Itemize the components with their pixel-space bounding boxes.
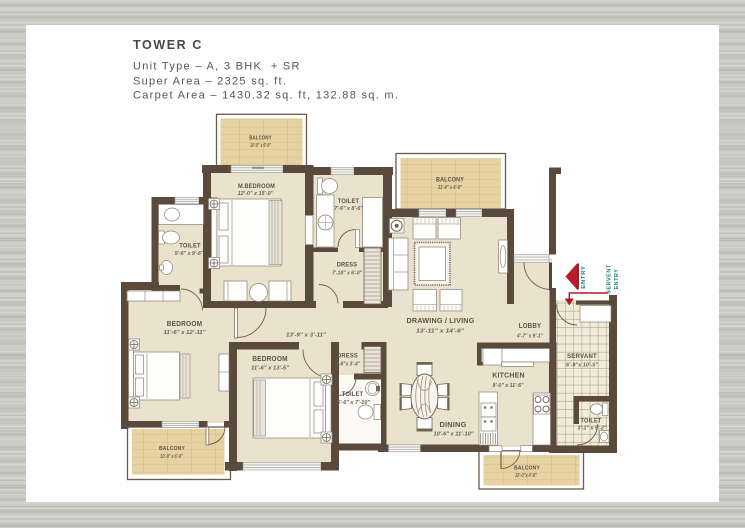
svg-text:11'-4" x 6'-0": 11'-4" x 6'-0" <box>438 185 462 191</box>
svg-text:10'-6" x 11'-10": 10'-6" x 11'-10" <box>434 432 474 438</box>
svg-text:SERVANT: SERVANT <box>567 353 597 360</box>
svg-text:Super Area – 2325 sq. ft.: Super Area – 2325 sq. ft. <box>133 75 287 87</box>
svg-text:3'-1" x 5'-2": 3'-1" x 5'-2" <box>578 426 608 432</box>
svg-text:7'-10" x 6'-0": 7'-10" x 6'-0" <box>332 271 362 277</box>
svg-text:TOILET: TOILET <box>179 243 201 250</box>
svg-text:ENTRY: ENTRY <box>614 268 620 289</box>
svg-text:12'-0"x 4'-8": 12'-0"x 4'-8" <box>515 473 537 479</box>
svg-text:7'-6" x 8'-6": 7'-6" x 8'-6" <box>334 206 363 212</box>
svg-text:BALCONY: BALCONY <box>159 446 185 452</box>
svg-text:5'-6" x 7'-10": 5'-6" x 7'-10" <box>337 400 370 406</box>
svg-text:DINING: DINING <box>440 422 467 429</box>
svg-text:6'-9"x 10'-5": 6'-9"x 10'-5" <box>566 363 599 369</box>
svg-text:DRESS: DRESS <box>337 262 358 269</box>
svg-text:13'-11" x 14'-6": 13'-11" x 14'-6" <box>416 329 464 335</box>
svg-text:BEDROOM: BEDROOM <box>167 321 203 328</box>
svg-text:TOWER C: TOWER C <box>133 38 203 52</box>
svg-text:SERVENT: SERVENT <box>607 264 613 294</box>
svg-text:8'-0" x 11'-6": 8'-0" x 11'-6" <box>493 383 524 389</box>
svg-text:BEDROOM: BEDROOM <box>252 356 288 363</box>
svg-text:KITCHEN: KITCHEN <box>492 373 525 380</box>
svg-text:M.BEDROOM: M.BEDROOM <box>238 183 275 190</box>
svg-text:BALCONY: BALCONY <box>436 178 464 184</box>
svg-text:4'-7" x 9'-1": 4'-7" x 9'-1" <box>516 334 543 340</box>
svg-text:BALCONY: BALCONY <box>514 466 540 472</box>
svg-text:13'-9" x 3'-11": 13'-9" x 3'-11" <box>286 333 326 339</box>
svg-text:5'-6"x 3'-4": 5'-6"x 3'-4" <box>335 362 361 368</box>
svg-text:Carpet Area – 1430.32 sq. ft,: Carpet Area – 1430.32 sq. ft, 132.88 sq.… <box>133 90 399 102</box>
svg-text:ENTRY: ENTRY <box>581 265 587 288</box>
svg-text:TOILET: TOILET <box>581 418 602 425</box>
svg-text:10'-9" x 6'-0": 10'-9" x 6'-0" <box>160 454 183 460</box>
svg-text:DRAWING / LIVING: DRAWING / LIVING <box>407 318 475 325</box>
svg-text:TOILET: TOILET <box>338 198 360 205</box>
svg-text:BALCONY: BALCONY <box>249 136 272 142</box>
svg-text:12'-0" x 15'-0": 12'-0" x 15'-0" <box>238 191 274 197</box>
svg-text:TOILET: TOILET <box>342 391 364 398</box>
svg-text:Unit Type – A, 3 BHK + SR: Unit Type – A, 3 BHK + SR <box>133 61 301 73</box>
svg-text:5'-6" x 9'-6": 5'-6" x 9'-6" <box>175 251 204 257</box>
svg-text:11'-6" x 12'-11": 11'-6" x 12'-11" <box>164 330 206 336</box>
svg-text:11'-6" x 13'-5": 11'-6" x 13'-5" <box>251 366 289 372</box>
svg-text:DRESS: DRESS <box>337 353 358 360</box>
svg-text:10'-0" x 6'-0": 10'-0" x 6'-0" <box>250 143 271 149</box>
svg-text:LOBBY: LOBBY <box>519 323 542 330</box>
